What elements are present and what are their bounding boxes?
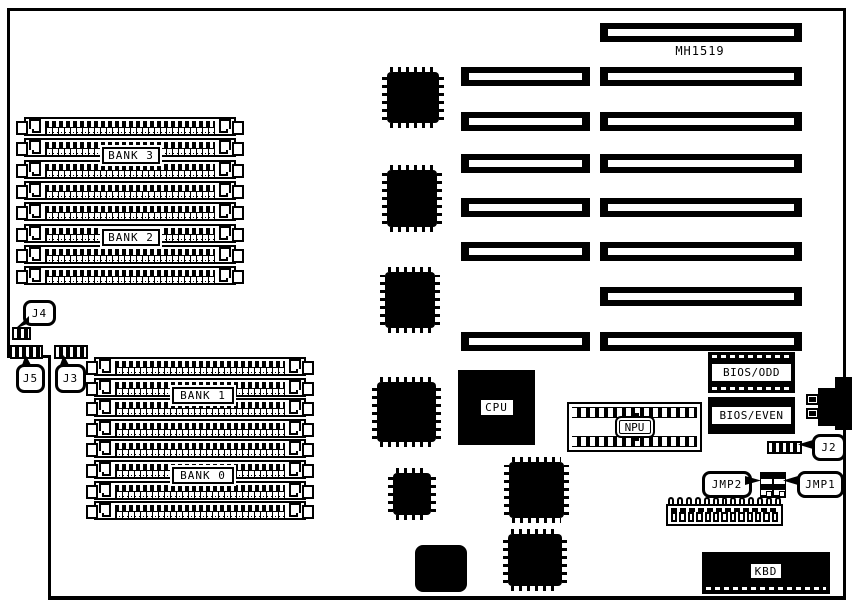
simm-solder-dots [115,372,285,373]
simm-socket [86,501,314,520]
simm-latch-right [289,441,301,455]
simm-latch-left [99,483,111,497]
power-cell [721,512,727,522]
simm-end-tab-right [232,142,244,156]
simm-latch-left [29,247,41,261]
keyboard-connector: KBD [702,552,830,594]
simm-group-banks-3-2 [16,117,244,287]
qfp-pins-top [388,267,432,272]
simm-solder-dots [45,260,215,261]
simm-socket-body [24,117,236,136]
power-cell [671,512,677,522]
cpu-label: CPU [480,399,514,416]
bios-even-label: BIOS/EVEN [711,406,792,425]
isa-slot-opening [608,293,794,300]
simm-latch-left [99,421,111,435]
npu-label: NPU [615,416,655,438]
isa-slot-opening [608,118,794,125]
simm-socket-body [94,501,306,520]
simm-socket [86,419,314,438]
simm-socket [16,245,244,264]
bios-odd-pin-row-top [712,355,791,358]
simm-pin-row-lower [115,449,285,457]
callout-jmp2-pointer [745,476,761,485]
qfp-pins-right [435,275,440,325]
simm-end-tab-right [302,443,314,457]
qfp-chip [388,468,436,520]
qfp-pins-right [439,75,444,120]
isa-expansion-slot [461,332,590,351]
simm-latch-left [29,268,41,282]
simm-latch-right [289,483,301,497]
qfp-chip-body [509,462,564,518]
simm-end-tab-left [16,121,28,135]
simm-socket [16,117,244,136]
power-cell [763,512,769,522]
simm-pin-row-lower [45,127,215,135]
power-cell [696,512,702,522]
isa-expansion-slot [600,67,802,86]
isa-slot-opening [469,73,582,80]
simm-latch-left [99,380,111,394]
kbd-pin-row [706,587,826,590]
qfp-chip-body [385,272,435,328]
power-cell [730,512,736,522]
qfp-chip-body [508,534,562,586]
simm-latch-right [289,421,301,435]
simm-end-tab-right [232,121,244,135]
simm-solder-dots [45,217,215,218]
simm-solder-dots [115,413,285,414]
simm-end-tab-right [232,206,244,220]
simm-latch-right [219,140,231,154]
simm-latch-left [99,503,111,517]
cpu-chip: CPU [458,370,535,445]
jumper-j4 [12,327,31,340]
simm-end-tab-left [86,382,98,396]
simm-end-tab-left [16,142,28,156]
callout-j5: J5 [16,364,45,393]
isa-expansion-slot [600,154,802,173]
simm-end-tab-left [86,505,98,519]
qfp-pins-left [372,385,377,439]
qfp-pins-left [382,75,387,120]
simm-end-tab-left [86,443,98,457]
bank-2-label: BANK 2 [102,229,160,246]
qfp-chip-body [387,170,437,227]
simm-end-tab-right [302,464,314,478]
simm-end-tab-left [16,206,28,220]
isa-slot-opening [469,338,582,345]
simm-end-tab-right [232,270,244,284]
isa-slot-opening [608,160,794,167]
simm-socket [86,439,314,458]
power-cell [772,512,778,522]
jumper-j2 [767,441,802,454]
bios-odd-pin-row-bottom [712,387,791,390]
simm-pin-row-lower [45,170,215,178]
simm-latch-left [29,204,41,218]
isa-expansion-slot [461,112,590,131]
simm-solder-dots [45,196,215,197]
isa-slot-opening [608,338,794,345]
simm-pin-row-lower [115,429,285,437]
isa-slot-opening [608,29,794,36]
isa-expansion-slot [461,242,590,261]
qfp-chip-body [393,473,431,515]
isa-expansion-slot [600,198,802,217]
qfp-pins-bottom [390,227,434,232]
simm-latch-left [99,359,111,373]
isa-expansion-slot [600,287,802,306]
simm-solder-dots [115,434,285,435]
simm-group-banks-1-0 [86,357,314,522]
bios-even-chip: BIOS/EVEN [708,397,795,434]
simm-pin-row-lower [115,491,285,499]
board-edge-bottom [48,596,846,600]
simm-end-tab-left [86,423,98,437]
qfp-pins-right [437,173,442,224]
qfp-pins-bottom [380,442,433,447]
simm-solder-dots [45,132,215,133]
qfp-chip [380,267,440,333]
power-cell [713,512,719,522]
power-cell [679,512,685,522]
simm-latch-right [289,400,301,414]
npu-socket: NPU [567,402,702,452]
simm-socket-body [24,245,236,264]
isa-expansion-slot [461,198,590,217]
qfp-pins-left [388,476,393,512]
power-cell [747,512,753,522]
callout-jmp1: JMP1 [797,471,844,498]
kbd-label: KBD [750,563,782,579]
qfp-pins-left [503,537,508,583]
callout-j3: J3 [55,364,86,393]
simm-latch-right [219,268,231,282]
simm-end-tab-left [16,249,28,263]
simm-pin-row-lower [115,367,285,375]
model-number-label: MH1519 [664,45,736,58]
isa-expansion-slot [600,23,802,42]
power-connector-cells [671,512,778,522]
simm-latch-right [289,380,301,394]
qfp-chip-body [415,545,467,592]
simm-pin-row-lower [115,408,285,416]
board-edge-left [7,8,10,358]
simm-pin-row-lower [45,255,215,263]
simm-latch-right [219,247,231,261]
simm-end-tab-right [232,185,244,199]
simm-solder-dots [45,281,215,282]
bank-0-label: BANK 0 [172,467,234,484]
qfp-pins-top [512,457,561,462]
simm-pin-row-lower [45,191,215,199]
simm-solder-dots [45,175,215,176]
callout-j2: J2 [812,434,846,461]
isa-slot-opening [608,73,794,80]
simm-end-tab-right [302,505,314,519]
isa-slot-opening [469,204,582,211]
din-connector-body [818,388,836,426]
jumper-block-jmp1 [773,472,786,498]
motherboard-diagram: BANK 3 BANK 2 BANK 1 BANK 0 MH1519 CPU N… [0,0,852,606]
isa-expansion-slot [600,242,802,261]
simm-latch-left [29,183,41,197]
simm-socket [16,202,244,221]
simm-end-tab-left [86,402,98,416]
qfp-chip [504,457,569,523]
bank-3-label: BANK 3 [102,147,160,164]
simm-latch-right [289,503,301,517]
qfp-chip [382,67,444,128]
simm-socket-body [24,202,236,221]
qfp-pins-bottom [390,123,436,128]
simm-socket-body [24,266,236,285]
simm-end-tab-left [86,464,98,478]
board-edge-right [843,8,846,600]
simm-socket-body [94,439,306,458]
simm-end-tab-left [16,164,28,178]
isa-expansion-slot [461,67,590,86]
qfp-pins-top [511,529,559,534]
simm-pin-row-lower [115,511,285,519]
simm-latch-left [29,162,41,176]
isa-slot-opening [608,248,794,255]
qfp-pins-top [390,165,434,170]
isa-slot-opening [469,248,582,255]
qfp-pins-right [562,537,567,583]
simm-end-tab-right [302,423,314,437]
qfp-pins-left [382,173,387,224]
power-connector-body [666,504,783,526]
simm-end-tab-left [16,270,28,284]
simm-end-tab-left [86,485,98,499]
qfp-chip [372,377,441,447]
simm-latch-right [219,162,231,176]
simm-latch-right [219,119,231,133]
simm-latch-right [219,226,231,240]
din-connector-pin [806,408,819,419]
qfp-pins-left [504,465,509,515]
callout-jmp2: JMP2 [702,471,752,498]
isa-slot-opening [469,160,582,167]
jumper-block-jmp2 [760,472,773,498]
qfp-pins-bottom [511,586,559,591]
simm-socket [16,181,244,200]
power-connector [666,497,783,526]
qfp-chip-body [377,382,436,442]
power-cell [688,512,694,522]
qfp-chip [415,545,467,592]
din-connector-pin [806,394,819,405]
bios-odd-chip: BIOS/ODD [708,352,795,393]
simm-end-tab-right [302,361,314,375]
qfp-pins-top [380,377,433,382]
simm-end-tab-right [302,485,314,499]
simm-latch-left [99,400,111,414]
simm-latch-right [289,359,301,373]
qfp-pins-right [564,465,569,515]
isa-expansion-slot [461,154,590,173]
qfp-pins-bottom [388,328,432,333]
jumper-j3 [54,345,88,359]
simm-solder-dots [115,516,285,517]
simm-end-tab-right [302,382,314,396]
qfp-pins-right [436,385,441,439]
simm-end-tab-right [302,402,314,416]
simm-solder-dots [115,496,285,497]
isa-slot-opening [469,118,582,125]
power-cell [705,512,711,522]
qfp-pins-bottom [512,518,561,523]
simm-latch-left [29,226,41,240]
isa-slot-opening [608,204,794,211]
simm-latch-left [99,462,111,476]
qfp-chip-body [387,72,439,123]
power-cell [738,512,744,522]
simm-end-tab-left [16,228,28,242]
board-edge-step-vertical [48,355,51,600]
simm-latch-left [29,140,41,154]
simm-socket-body [94,419,306,438]
simm-socket [16,266,244,285]
simm-latch-left [99,441,111,455]
qfp-pins-right [431,476,436,512]
isa-expansion-slot [600,112,802,131]
bank-1-label: BANK 1 [172,387,234,404]
simm-latch-right [219,204,231,218]
qfp-pins-bottom [396,515,428,520]
simm-socket-body [24,181,236,200]
simm-end-tab-left [86,361,98,375]
qfp-chip [503,529,567,591]
qfp-pins-top [396,468,428,473]
simm-end-tab-left [16,185,28,199]
power-cell [755,512,761,522]
isa-expansion-slot [600,332,802,351]
simm-latch-left [29,119,41,133]
board-edge-top [7,8,846,11]
simm-socket-body [94,357,306,376]
simm-end-tab-right [232,249,244,263]
simm-end-tab-right [232,164,244,178]
qfp-pins-left [380,275,385,325]
simm-latch-right [289,462,301,476]
simm-socket [86,357,314,376]
din-connector-shell [835,377,852,430]
simm-pin-row-lower [45,276,215,284]
simm-latch-right [219,183,231,197]
simm-pin-row-lower [45,212,215,220]
simm-solder-dots [115,454,285,455]
qfp-chip [382,165,442,232]
qfp-pins-top [390,67,436,72]
simm-end-tab-right [232,228,244,242]
bios-odd-label: BIOS/ODD [711,363,792,382]
